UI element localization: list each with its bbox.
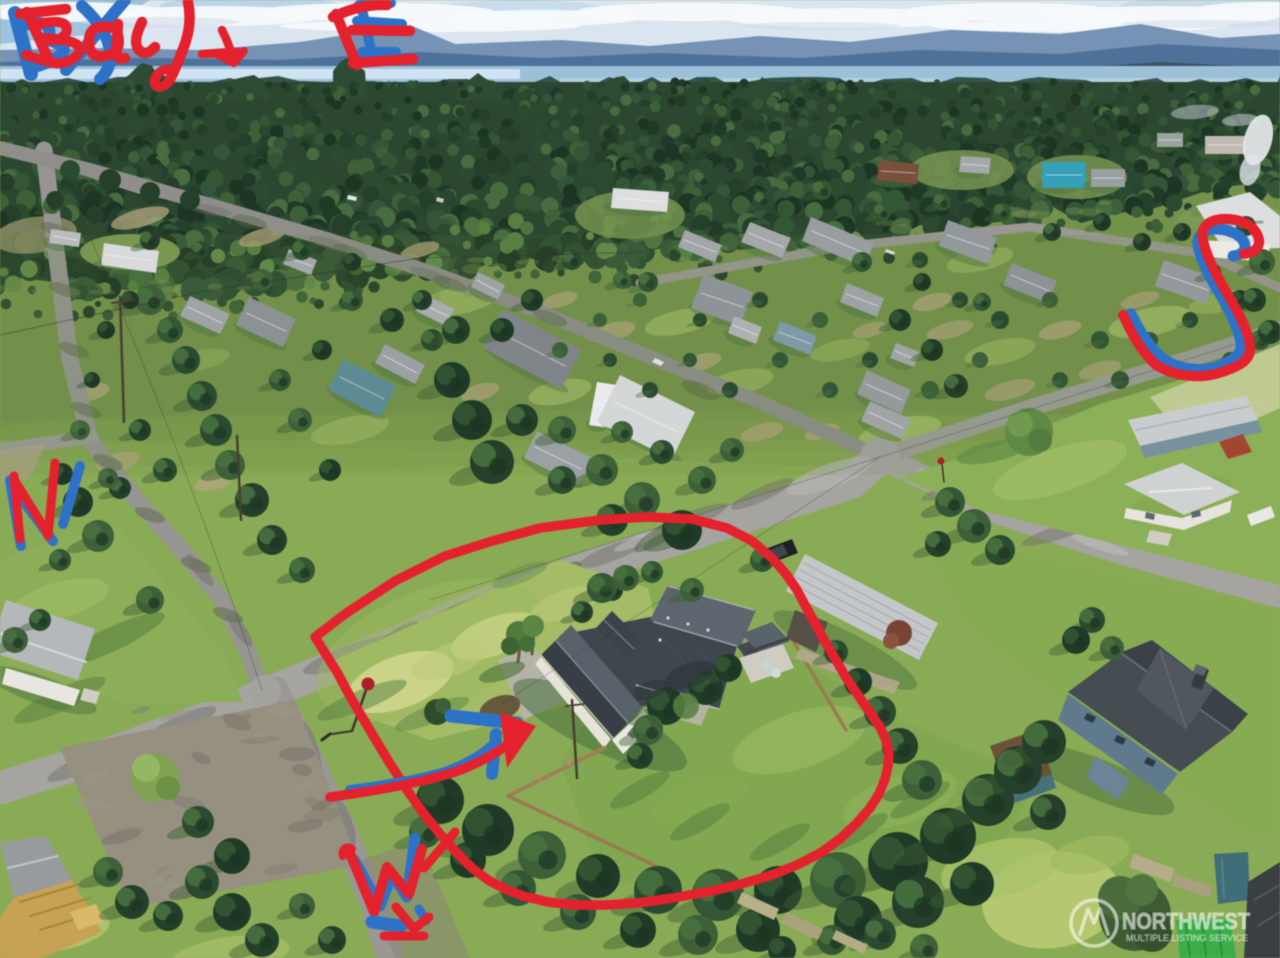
svg-text:NORTHWEST: NORTHWEST [1122, 908, 1250, 934]
svg-text:MULTIPLE LISTING SERVICE: MULTIPLE LISTING SERVICE [1126, 933, 1248, 943]
